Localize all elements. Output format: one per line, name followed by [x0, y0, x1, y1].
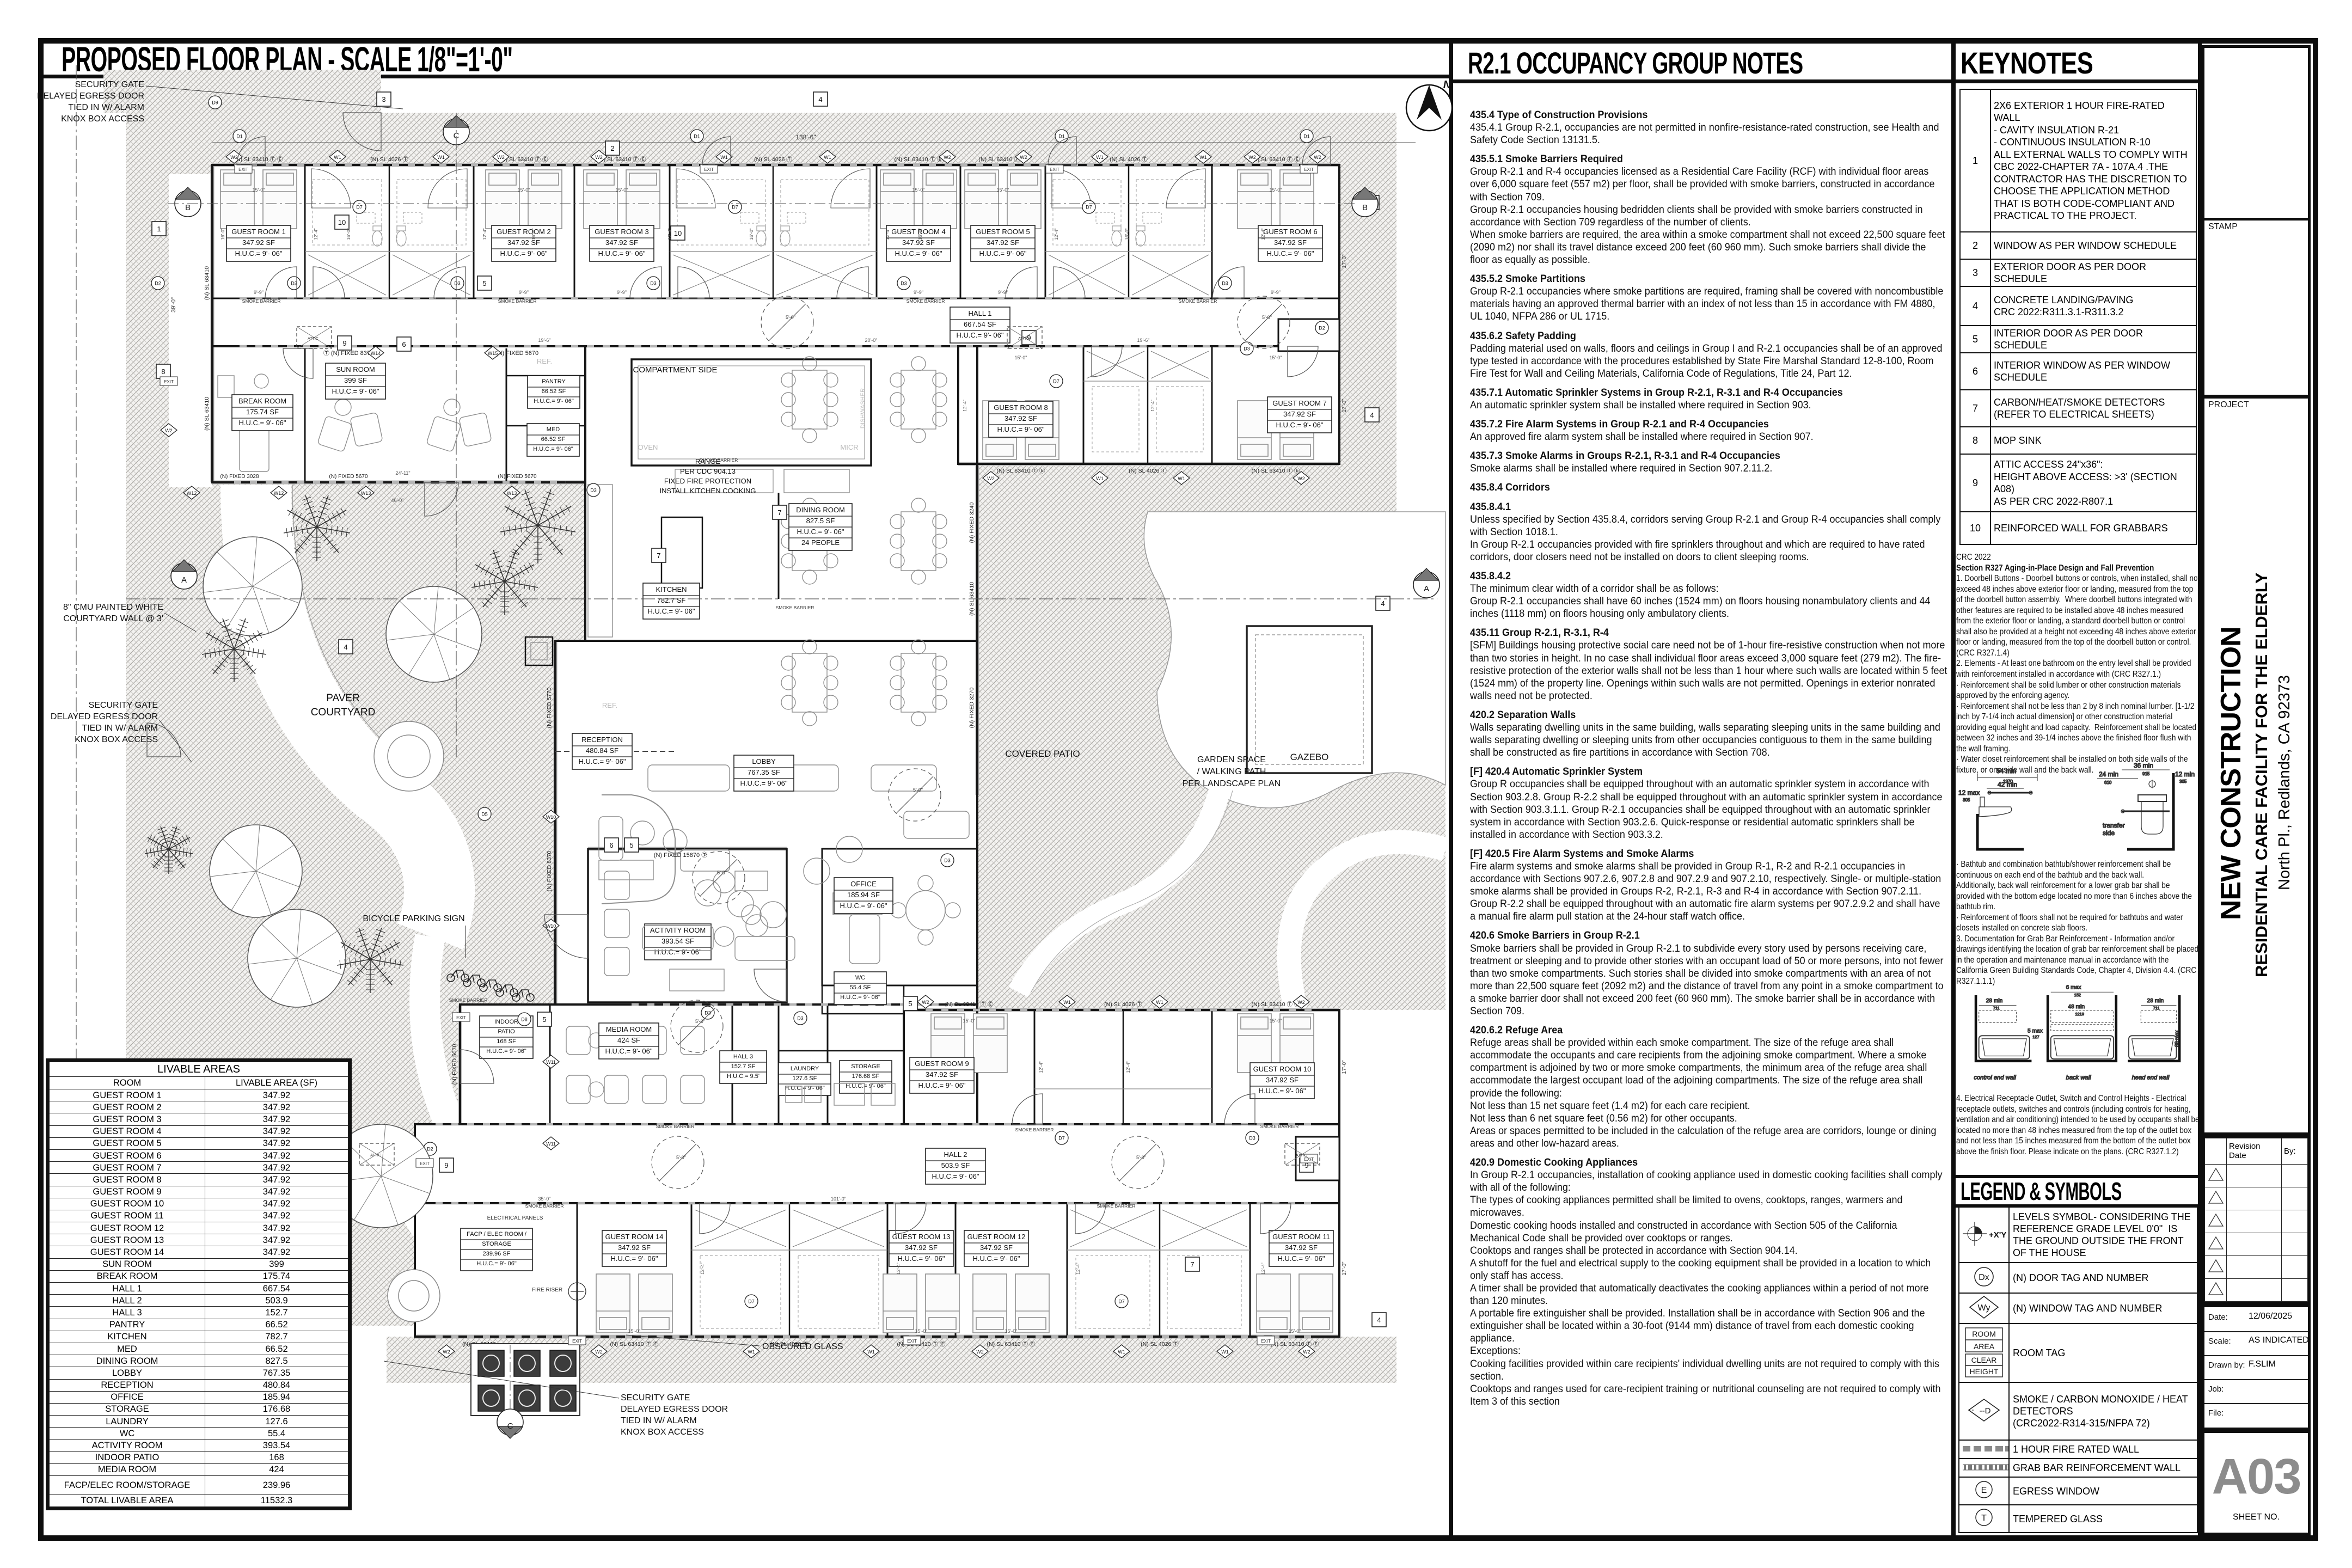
svg-text:16'-0": 16'-0"	[531, 228, 536, 240]
svg-text:H.U.C.= 9'- 06": H.U.C.= 9'- 06"	[611, 1254, 658, 1263]
svg-text:W10: W10	[546, 923, 556, 929]
svg-text:GUEST ROOM 2: GUEST ROOM 2	[497, 228, 550, 236]
svg-text:7: 7	[777, 509, 781, 517]
svg-text:W11: W11	[546, 1141, 556, 1147]
svg-text:19'-6": 19'-6"	[1137, 338, 1150, 343]
svg-text:(N) SL 4026 Ⓣ: (N) SL 4026 Ⓣ	[1104, 1001, 1142, 1008]
svg-text:(N) SL 4026 Ⓣ: (N) SL 4026 Ⓣ	[1141, 1341, 1179, 1347]
svg-text:back wall: back wall	[2066, 1074, 2091, 1081]
svg-text:W1: W1	[1221, 1349, 1229, 1355]
svg-text:12'-4": 12'-4"	[1260, 228, 1266, 240]
svg-text:Wy: Wy	[1978, 1303, 1990, 1313]
svg-text:PANTRY: PANTRY	[542, 378, 566, 385]
svg-text:(N) SL 63410 Ⓣ Ⓔ: (N) SL 63410 Ⓣ Ⓔ	[997, 468, 1045, 474]
svg-text:152.7 SF: 152.7 SF	[731, 1063, 756, 1070]
svg-text:COMPARTMENT SIDE: COMPARTMENT SIDE	[633, 365, 717, 375]
svg-text:+X'Y": +X'Y"	[1989, 1230, 2006, 1240]
svg-text:H.U.C.= 9'- 06": H.U.C.= 9'- 06"	[973, 1254, 1020, 1263]
svg-text:H.U.C.= 9'- 06": H.U.C.= 9'- 06"	[1276, 421, 1324, 429]
svg-text:12'-4": 12'-4"	[667, 228, 672, 240]
svg-text:138'-6": 138'-6"	[795, 133, 816, 141]
svg-text:347.92 SF: 347.92 SF	[1004, 414, 1037, 422]
svg-text:6: 6	[609, 841, 613, 849]
svg-text:24'-11": 24'-11"	[395, 470, 410, 476]
svg-text:HALL 1: HALL 1	[969, 309, 992, 317]
svg-text:H.U.C.= 9'- 06": H.U.C.= 9'- 06"	[332, 387, 379, 395]
svg-text:side: side	[2103, 829, 2115, 837]
svg-text:EXIT: EXIT	[164, 379, 174, 384]
svg-text:OVEN: OVEN	[638, 443, 658, 451]
svg-text:D3: D3	[901, 281, 907, 286]
svg-text:5: 5	[482, 279, 486, 287]
svg-text:(N) FIXED 3270: (N) FIXED 3270	[969, 688, 975, 728]
svg-text:KNOX BOX ACCESS: KNOX BOX ACCESS	[621, 1428, 704, 1437]
svg-text:H.U.C.= 9'- 06": H.U.C.= 9'- 06"	[654, 948, 702, 956]
svg-text:transfer: transfer	[2103, 822, 2125, 829]
svg-text:D7: D7	[1053, 379, 1059, 384]
svg-text:SMOKE BARRIER: SMOKE BARRIER	[906, 298, 945, 304]
svg-text:BICYCLE PARKING SIGN: BICYCLE PARKING SIGN	[363, 914, 464, 923]
svg-text:W1: W1	[1199, 155, 1207, 160]
svg-text:GUEST ROOM 13: GUEST ROOM 13	[892, 1233, 951, 1241]
svg-text:D3: D3	[1249, 1136, 1255, 1141]
svg-text:N: N	[1443, 79, 1451, 91]
svg-text:T: T	[1981, 1514, 1987, 1523]
svg-text:(N) SL 63410 Ⓣ Ⓔ: (N) SL 63410 Ⓣ Ⓔ	[1252, 1001, 1300, 1008]
svg-text:(N) FIXED 3028: (N) FIXED 3028	[220, 474, 259, 480]
svg-text:W12: W12	[274, 491, 284, 496]
svg-text:16'-0": 16'-0"	[749, 228, 754, 240]
svg-text:HEIGHT: HEIGHT	[1970, 1367, 1999, 1376]
svg-text:H.U.C.= 9'- 06": H.U.C.= 9'- 06"	[957, 331, 1004, 339]
svg-text:66.52 SF: 66.52 SF	[541, 436, 566, 443]
svg-text:12'-4": 12'-4"	[1150, 400, 1155, 412]
svg-text:W2: W2	[1020, 155, 1027, 160]
svg-text:H.U.C.= 9'- 06": H.U.C.= 9'- 06"	[740, 779, 788, 787]
svg-text:15'-0": 15'-0"	[997, 187, 1009, 193]
svg-text:H.U.C.= 9'- 06": H.U.C.= 9'- 06"	[598, 249, 646, 258]
svg-text:E: E	[1981, 1486, 1987, 1495]
svg-text:152: 152	[2074, 993, 2081, 997]
svg-text:(N) SL 63410 Ⓣ Ⓔ: (N) SL 63410 Ⓣ Ⓔ	[895, 156, 943, 163]
svg-text:15'-0": 15'-0"	[1270, 355, 1282, 360]
svg-text:SECURITY GATE: SECURITY GATE	[621, 1393, 690, 1402]
svg-text:15'-0": 15'-0"	[1015, 355, 1027, 360]
svg-text:16'-0": 16'-0"	[220, 228, 225, 240]
svg-text:B: B	[185, 203, 191, 212]
svg-text:SMOKE BARRIER: SMOKE BARRIER	[1015, 1127, 1054, 1132]
svg-text:(N) FIXED 5670: (N) FIXED 5670	[496, 350, 538, 357]
svg-text:FACP / ELEC ROOM /: FACP / ELEC ROOM /	[467, 1231, 527, 1238]
svg-text:4: 4	[818, 95, 822, 103]
svg-text:SMOKE BARRIER: SMOKE BARRIER	[700, 457, 738, 463]
svg-text:GAZEBO: GAZEBO	[1290, 752, 1329, 762]
svg-text:W2: W2	[1314, 155, 1321, 160]
svg-text:W2: W2	[922, 1000, 929, 1005]
svg-text:EXIT: EXIT	[1261, 1339, 1271, 1344]
svg-text:827.5 SF: 827.5 SF	[806, 517, 835, 525]
svg-text:GUEST ROOM 7: GUEST ROOM 7	[1272, 399, 1326, 407]
svg-text:4: 4	[1377, 1316, 1381, 1324]
svg-text:9'-9": 9'-9"	[1271, 290, 1281, 295]
svg-text:667.54 SF: 667.54 SF	[964, 320, 996, 328]
svg-text:239.96 SF: 239.96 SF	[483, 1251, 511, 1257]
svg-text:347.92 SF: 347.92 SF	[987, 238, 1019, 247]
svg-text:5'-0": 5'-0"	[1136, 1155, 1146, 1160]
svg-text:EXIT: EXIT	[907, 1339, 917, 1344]
svg-text:SMOKE BARRIER: SMOKE BARRIER	[1260, 1124, 1299, 1129]
svg-text:CLEAR: CLEAR	[1971, 1356, 1997, 1364]
svg-text:A: A	[181, 575, 187, 585]
svg-text:175.74 SF: 175.74 SF	[246, 408, 279, 416]
svg-text:127: 127	[2032, 1034, 2039, 1039]
svg-text:D3: D3	[944, 858, 951, 863]
svg-text:46'-0": 46'-0"	[391, 498, 404, 503]
svg-text:305: 305	[2179, 779, 2187, 784]
svg-text:H.U.C.= 9'- 06": H.U.C.= 9'- 06"	[533, 446, 573, 452]
svg-text:W12: W12	[187, 491, 197, 496]
svg-text:H.U.C.= 9'- 06": H.U.C.= 9'- 06"	[1267, 249, 1314, 258]
svg-text:12'-4": 12'-4"	[1053, 228, 1059, 240]
svg-text:STORAGE: STORAGE	[482, 1241, 511, 1247]
svg-text:control end wall: control end wall	[1974, 1074, 2016, 1081]
svg-text:PAVER: PAVER	[326, 693, 360, 704]
svg-text:5: 5	[542, 1015, 546, 1024]
svg-text:15'-0": 15'-0"	[628, 1328, 641, 1334]
svg-text:305: 305	[1963, 798, 1970, 803]
svg-text:H.U.C.= 9'- 06": H.U.C.= 9'- 06"	[648, 607, 695, 615]
svg-text:(N) SL 4026 Ⓣ: (N) SL 4026 Ⓣ	[370, 156, 408, 163]
svg-text:12 min: 12 min	[2175, 770, 2195, 778]
svg-text:3: 3	[382, 95, 385, 103]
svg-text:SMOKE BARRIER: SMOKE BARRIER	[656, 1124, 695, 1129]
svg-text:9'-9": 9'-9"	[914, 290, 923, 295]
svg-text:(N) SL 63410: (N) SL 63410	[204, 397, 210, 431]
svg-text:EXIT: EXIT	[704, 167, 714, 172]
svg-text:5'-0": 5'-0"	[913, 787, 923, 793]
svg-text:4: 4	[1370, 411, 1374, 419]
svg-text:D1: D1	[1058, 134, 1065, 139]
svg-text:W2: W2	[1297, 476, 1305, 481]
svg-text:ROOM: ROOM	[1972, 1330, 1996, 1338]
svg-text:H.U.C.= 9'- 06": H.U.C.= 9'- 06"	[486, 1048, 526, 1055]
svg-text:15'-0": 15'-0"	[963, 1018, 976, 1024]
svg-text:OFFICE: OFFICE	[850, 880, 877, 888]
svg-text:15'-0": 15'-0"	[1270, 187, 1282, 193]
svg-text:SMOKE BARRIER: SMOKE BARRIER	[1179, 298, 1217, 304]
svg-text:6: 6	[402, 340, 406, 348]
svg-text:(N) FIXED 3240: (N) FIXED 3240	[969, 503, 975, 543]
svg-text:16'-0": 16'-0"	[1124, 228, 1130, 240]
svg-text:TIED IN W/ ALARM: TIED IN W/ ALARM	[621, 1416, 697, 1425]
svg-text:12'-4": 12'-4"	[482, 228, 487, 240]
svg-text:W1: W1	[1156, 1000, 1163, 1005]
svg-text:DINING ROOM: DINING ROOM	[796, 506, 845, 514]
svg-text:347.92 SF: 347.92 SF	[1283, 410, 1316, 418]
svg-text:(N) FIXED 5670: (N) FIXED 5670	[329, 474, 368, 480]
svg-text:DELAYED EGRESS DOOR: DELAYED EGRESS DOOR	[51, 712, 158, 721]
svg-text:ELECTRICAL PANELS: ELECTRICAL PANELS	[487, 1215, 543, 1221]
svg-text:1: 1	[157, 225, 161, 233]
svg-text:D7: D7	[732, 205, 738, 210]
svg-text:D1: D1	[1303, 134, 1310, 139]
svg-text:EXIT: EXIT	[420, 1161, 430, 1166]
svg-text:6 max: 6 max	[2066, 985, 2081, 991]
svg-text:EXIT: EXIT	[572, 1339, 582, 1344]
svg-text:W1: W1	[1178, 476, 1185, 481]
svg-text:W11: W11	[546, 1059, 556, 1065]
svg-text:101'-0": 101'-0"	[831, 1196, 846, 1202]
svg-text:D3: D3	[590, 488, 597, 493]
svg-text:H.U.C.= 9'- 06": H.U.C.= 9'- 06"	[997, 425, 1045, 433]
svg-text:(N) SL 63410 Ⓣ Ⓔ: (N) SL 63410 Ⓣ Ⓔ	[1252, 468, 1300, 474]
svg-text:15'-0": 15'-0"	[616, 187, 628, 193]
svg-text:12'-4": 12'-4"	[885, 228, 890, 240]
svg-text:10: 10	[674, 229, 682, 237]
svg-text:W2: W2	[165, 428, 173, 433]
svg-text:(N) FIXED 8370: (N) FIXED 8370	[546, 851, 553, 892]
svg-text:424 SF: 424 SF	[617, 1036, 640, 1044]
svg-text:FIXED FIRE PROTECTION: FIXED FIRE PROTECTION	[664, 477, 751, 485]
svg-text:W15: W15	[488, 351, 498, 356]
svg-text:W2: W2	[443, 1349, 450, 1355]
svg-text:9'-9": 9'-9"	[617, 290, 627, 295]
svg-text:H.U.C.= 9'- 06": H.U.C.= 9'- 06"	[979, 249, 1027, 258]
svg-text:12'-4": 12'-4"	[1038, 1061, 1044, 1073]
svg-text:COURTYARD: COURTYARD	[311, 707, 376, 718]
svg-text:H.U.C.= 9.5': H.U.C.= 9.5'	[727, 1073, 759, 1080]
svg-text:INDOOR: INDOOR	[494, 1019, 518, 1025]
svg-text:D1: D1	[236, 134, 243, 139]
svg-text:W1: W1	[1096, 476, 1104, 481]
svg-text:HALL 3: HALL 3	[733, 1053, 753, 1060]
svg-text:ATTIC: ATTIC	[1018, 337, 1029, 341]
svg-text:HALL 2: HALL 2	[944, 1150, 967, 1159]
svg-text:H.U.C.= 9'- 06": H.U.C.= 9'- 06"	[797, 528, 844, 536]
svg-text:W10: W10	[546, 814, 556, 820]
svg-text:GUEST ROOM 10: GUEST ROOM 10	[1253, 1065, 1312, 1073]
svg-text:D2: D2	[155, 281, 161, 286]
svg-text:7: 7	[657, 552, 660, 560]
svg-text:55.4 SF: 55.4 SF	[850, 984, 871, 991]
svg-text:D2: D2	[1319, 326, 1325, 331]
svg-text:--D: --D	[1980, 1406, 1991, 1416]
svg-text:W1: W1	[334, 155, 341, 160]
svg-text:KNOX BOX ACCESS: KNOX BOX ACCESS	[61, 114, 144, 124]
svg-text:24 PEOPLE: 24 PEOPLE	[801, 538, 840, 547]
svg-text:GUEST ROOM 9: GUEST ROOM 9	[915, 1059, 969, 1068]
svg-text:782.7 SF: 782.7 SF	[657, 596, 686, 604]
svg-text:D8: D8	[521, 1017, 528, 1022]
svg-text:D7: D7	[1118, 1299, 1125, 1304]
svg-text:GUEST ROOM 3: GUEST ROOM 3	[595, 228, 648, 236]
svg-text:(N) SL 63410 Ⓣ Ⓔ: (N) SL 63410 Ⓣ Ⓔ	[945, 1001, 994, 1008]
svg-text:ATTIC: ATTIC	[1296, 1154, 1307, 1157]
svg-text:17'-0": 17'-0"	[1342, 254, 1347, 268]
svg-text:15'-0": 15'-0"	[1270, 1018, 1282, 1024]
svg-text:AREA: AREA	[1974, 1342, 1995, 1351]
svg-text:15'-0": 15'-0"	[1289, 1328, 1301, 1334]
svg-text:15'-0": 15'-0"	[253, 187, 265, 193]
svg-text:H.U.C.= 9'- 06": H.U.C.= 9'- 06"	[895, 249, 942, 258]
svg-text:D7: D7	[1058, 1136, 1065, 1141]
svg-text:REF.: REF.	[602, 701, 617, 709]
svg-text:REF.: REF.	[537, 357, 552, 365]
svg-text:767.35 SF: 767.35 SF	[748, 768, 780, 776]
svg-text:4: 4	[344, 643, 347, 651]
svg-text:GUEST ROOM 1: GUEST ROOM 1	[231, 228, 285, 236]
svg-text:H.U.C.= 9'- 06": H.U.C.= 9'- 06"	[500, 249, 548, 258]
svg-text:PER CDC 904.13: PER CDC 904.13	[680, 467, 736, 475]
svg-text:SMOKE BARRIER: SMOKE BARRIER	[1097, 1203, 1136, 1209]
svg-text:W14: W14	[371, 351, 381, 356]
svg-text:W1: W1	[720, 155, 728, 160]
svg-text:D7: D7	[1086, 205, 1092, 210]
svg-text:C: C	[507, 1422, 513, 1431]
svg-text:KITCHEN: KITCHEN	[656, 585, 687, 593]
svg-text:20'-0": 20'-0"	[865, 338, 878, 343]
svg-text:(N) SL 63410 Ⓣ Ⓔ: (N) SL 63410 Ⓣ Ⓔ	[1271, 1341, 1319, 1347]
svg-text:H.U.C.= 9'- 06": H.U.C.= 9'- 06"	[840, 994, 880, 1001]
svg-text:SMOKE BARRIER: SMOKE BARRIER	[776, 605, 814, 610]
svg-text:12'-4": 12'-4"	[1125, 1061, 1131, 1073]
svg-text:D7: D7	[748, 1299, 755, 1304]
svg-text:185.94 SF: 185.94 SF	[847, 891, 880, 899]
svg-text:GARDEN SPACE: GARDEN SPACE	[1197, 755, 1266, 764]
svg-text:28 min: 28 min	[1986, 998, 2003, 1004]
svg-text:ATTIC: ATTIC	[308, 337, 318, 341]
svg-text:WC: WC	[855, 975, 865, 981]
svg-text:15'-0": 15'-0"	[915, 1328, 928, 1334]
svg-text:D3: D3	[291, 281, 297, 286]
svg-text:LAUNDRY: LAUNDRY	[791, 1065, 819, 1072]
svg-text:347.92 SF: 347.92 SF	[605, 238, 638, 247]
svg-text:D3: D3	[797, 1016, 804, 1021]
svg-text:915: 915	[2142, 771, 2150, 776]
svg-text:347.92 SF: 347.92 SF	[1274, 238, 1307, 247]
svg-text:Dx: Dx	[1979, 1273, 1989, 1282]
svg-text:W2: W2	[1297, 1000, 1305, 1005]
svg-text:12'-4": 12'-4"	[1075, 1263, 1081, 1275]
svg-text:399 SF: 399 SF	[344, 376, 367, 384]
svg-text:711: 711	[1993, 1006, 2000, 1010]
svg-text:39'-0": 39'-0"	[170, 297, 177, 313]
svg-text:D3: D3	[454, 281, 461, 286]
svg-text:H.U.C.= 9'- 06": H.U.C.= 9'- 06"	[840, 902, 887, 910]
svg-text:W1: W1	[437, 155, 445, 160]
svg-text:D1: D1	[694, 134, 700, 139]
svg-text:(N) SL 4026 Ⓣ: (N) SL 4026 Ⓣ	[1110, 156, 1148, 163]
svg-text:GUEST ROOM 12: GUEST ROOM 12	[967, 1233, 1026, 1241]
svg-text:9'-9": 9'-9"	[254, 290, 264, 295]
svg-text:66.52 SF: 66.52 SF	[542, 388, 566, 395]
svg-text:W1: W1	[1096, 155, 1104, 160]
svg-text:MICR: MICR	[840, 443, 858, 451]
svg-text:347.92 SF: 347.92 SF	[1285, 1244, 1318, 1252]
svg-text:5: 5	[629, 841, 633, 849]
svg-text:FIRE RISER: FIRE RISER	[532, 1287, 562, 1293]
svg-text:H.U.C.= 9'- 06": H.U.C.= 9'- 06"	[534, 398, 574, 405]
svg-text:H.U.C.= 9'- 06": H.U.C.= 9'- 06"	[918, 1081, 966, 1089]
svg-text:W2: W2	[230, 155, 238, 160]
svg-text:(N) SL 4026 Ⓣ: (N) SL 4026 Ⓣ	[754, 156, 792, 163]
svg-text:DISHWASHER: DISHWASHER	[860, 388, 866, 428]
svg-text:5'-0": 5'-0"	[717, 870, 727, 875]
svg-text:W1: W1	[1118, 1349, 1125, 1355]
svg-text:W1: W1	[1063, 1000, 1071, 1005]
svg-text:17'-0": 17'-0"	[1342, 399, 1347, 413]
svg-text:17'-0": 17'-0"	[1342, 1261, 1347, 1276]
svg-text:393.54 SF: 393.54 SF	[661, 937, 694, 945]
svg-text:5'-0": 5'-0"	[695, 1019, 705, 1024]
svg-text:OBSCURED GLASS: OBSCURED GLASS	[762, 1342, 843, 1351]
svg-text:TIED IN W/ ALARM: TIED IN W/ ALARM	[68, 103, 144, 112]
svg-text:Ⓣ (N) FIXED 8370: Ⓣ (N) FIXED 8370	[323, 350, 373, 357]
svg-text:GUEST ROOM 5: GUEST ROOM 5	[976, 228, 1030, 236]
svg-text:COURTYARD WALL @ 3': COURTYARD WALL @ 3'	[63, 614, 163, 623]
svg-text:MED: MED	[547, 426, 560, 433]
svg-text:H.U.C.= 9'- 06": H.U.C.= 9'- 06"	[235, 249, 283, 258]
svg-text:(N) FIXED 15870 Ⓣ: (N) FIXED 15870 Ⓣ	[654, 852, 707, 859]
svg-text:STORAGE: STORAGE	[851, 1063, 880, 1070]
svg-text:SUN ROOM: SUN ROOM	[336, 365, 375, 373]
svg-text:KNOX BOX ACCESS: KNOX BOX ACCESS	[75, 735, 158, 744]
svg-text:30 max: 30 max	[2174, 1030, 2179, 1047]
svg-text:SMOKE BARRIER: SMOKE BARRIER	[525, 1203, 564, 1209]
svg-text:24 min: 24 min	[2099, 770, 2118, 778]
svg-text:W2: W2	[595, 155, 603, 160]
svg-text:SMOKE BARRIER: SMOKE BARRIER	[242, 298, 281, 304]
svg-text:GUEST ROOM 8: GUEST ROOM 8	[994, 403, 1048, 412]
svg-text:D9: D9	[212, 100, 218, 106]
svg-text:H.U.C.= 9'- 06": H.U.C.= 9'- 06"	[932, 1172, 979, 1180]
svg-text:W2: W2	[595, 1349, 603, 1355]
svg-text:503.9 SF: 503.9 SF	[941, 1161, 970, 1169]
svg-text:480.84 SF: 480.84 SF	[586, 746, 618, 755]
svg-text:GUEST ROOM 14: GUEST ROOM 14	[605, 1233, 664, 1241]
svg-text:SECURITY GATE: SECURITY GATE	[75, 80, 144, 89]
svg-text:54 min: 54 min	[1996, 767, 2016, 775]
svg-text:15'-0": 15'-0"	[912, 187, 925, 193]
svg-text:LOBBY: LOBBY	[752, 757, 776, 765]
svg-text:B: B	[1362, 203, 1368, 212]
svg-text:1219: 1219	[2075, 1012, 2084, 1016]
svg-text:D3: D3	[650, 281, 657, 286]
svg-text:H.U.C.= 9'- 06": H.U.C.= 9'- 06"	[898, 1254, 945, 1263]
svg-text:H.U.C.= 9'- 06": H.U.C.= 9'- 06"	[239, 419, 286, 427]
svg-text:12'-4": 12'-4"	[1260, 1263, 1266, 1275]
svg-text:12'-4": 12'-4"	[313, 228, 318, 240]
svg-text:347.92 SF: 347.92 SF	[926, 1070, 958, 1079]
svg-text:D3: D3	[1222, 281, 1228, 286]
svg-text:RECEPTION: RECEPTION	[581, 736, 623, 744]
svg-text:4: 4	[1381, 599, 1385, 608]
svg-text:EXIT: EXIT	[1304, 167, 1314, 172]
svg-text:127.6 SF: 127.6 SF	[793, 1075, 817, 1082]
svg-text:9: 9	[342, 339, 346, 347]
svg-text:W1: W1	[867, 1349, 875, 1355]
svg-text:10: 10	[338, 218, 346, 226]
svg-text:35'-0": 35'-0"	[538, 1196, 551, 1202]
svg-text:16'-0": 16'-0"	[346, 228, 351, 240]
svg-text:H.U.C.= 9'- 06": H.U.C.= 9'- 06"	[476, 1260, 517, 1267]
svg-text:5 max: 5 max	[2028, 1028, 2043, 1034]
svg-text:16'-0": 16'-0"	[917, 228, 923, 240]
svg-text:42 min: 42 min	[1998, 781, 2017, 788]
svg-text:D3: D3	[1244, 346, 1250, 352]
svg-text:(N) FIXED 5070: (N) FIXED 5070	[451, 1044, 458, 1085]
svg-text:EXIT: EXIT	[456, 1015, 466, 1020]
